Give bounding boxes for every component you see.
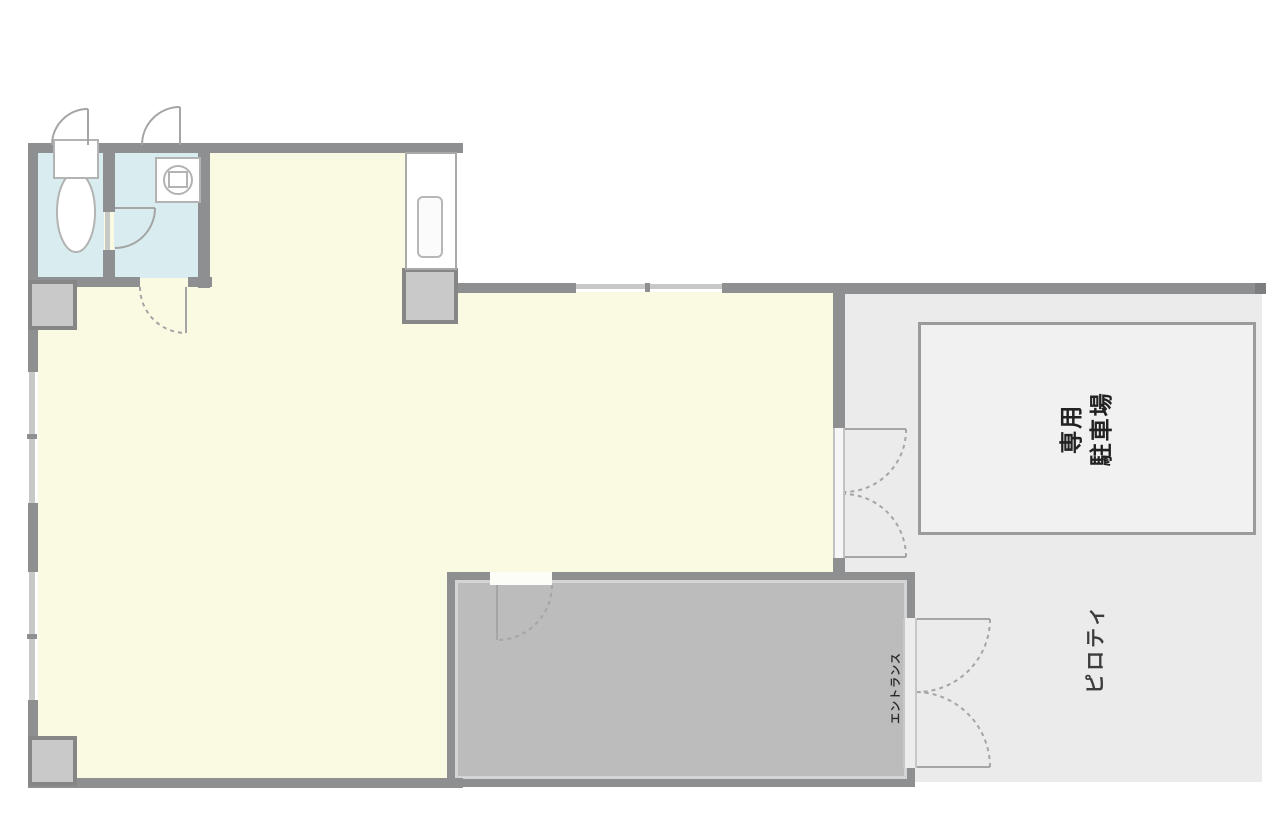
parking-label: 専用 駐車場	[918, 322, 1256, 535]
left-window-lower-mullion	[27, 634, 37, 639]
entrance-room	[447, 572, 915, 787]
main-room-double-door-gap	[833, 428, 845, 558]
window-pane	[417, 196, 443, 258]
left-wall-middle	[28, 503, 38, 572]
pillar-west-lower	[28, 736, 77, 786]
parking-label-line2: 駐車場	[1087, 369, 1117, 489]
pillar-north-east	[402, 268, 458, 324]
north-window-mullion	[645, 283, 650, 292]
parking-label-line1: 専用	[1057, 369, 1087, 489]
left-window-upper-mullion	[27, 434, 37, 439]
toilet-partition-upper	[103, 148, 115, 212]
top-wall	[28, 143, 463, 153]
toilet-room	[38, 152, 104, 278]
east-wall-lower	[833, 558, 845, 575]
bottom-wall	[28, 778, 463, 788]
entrance-label: エントランス	[882, 624, 908, 752]
piloti-wall-end-cap	[1255, 283, 1266, 294]
washroom-east-wall	[198, 143, 210, 288]
piloti-north-wall	[843, 283, 1266, 294]
entrance-room-door-gap	[490, 572, 552, 585]
toilet-partition-lower	[103, 250, 115, 278]
pillar-west-upper	[28, 280, 77, 330]
floor-plan: 専用 駐車場 ピロティ エントランス	[0, 0, 1280, 834]
wet-rooms-south-wall-east	[188, 277, 212, 287]
toilet-door-arc	[52, 109, 88, 145]
washroom-door-opening	[105, 212, 110, 250]
washroom	[114, 152, 199, 278]
east-wall-upper	[833, 283, 845, 428]
washroom-outer-door-arc	[142, 107, 180, 145]
piloti-label: ピロティ	[1037, 594, 1149, 702]
main-room-east-wing	[452, 292, 841, 577]
north-wall-west-segment	[452, 283, 576, 293]
left-wall-upper	[28, 143, 38, 372]
north-wall-east-segment	[722, 283, 843, 293]
